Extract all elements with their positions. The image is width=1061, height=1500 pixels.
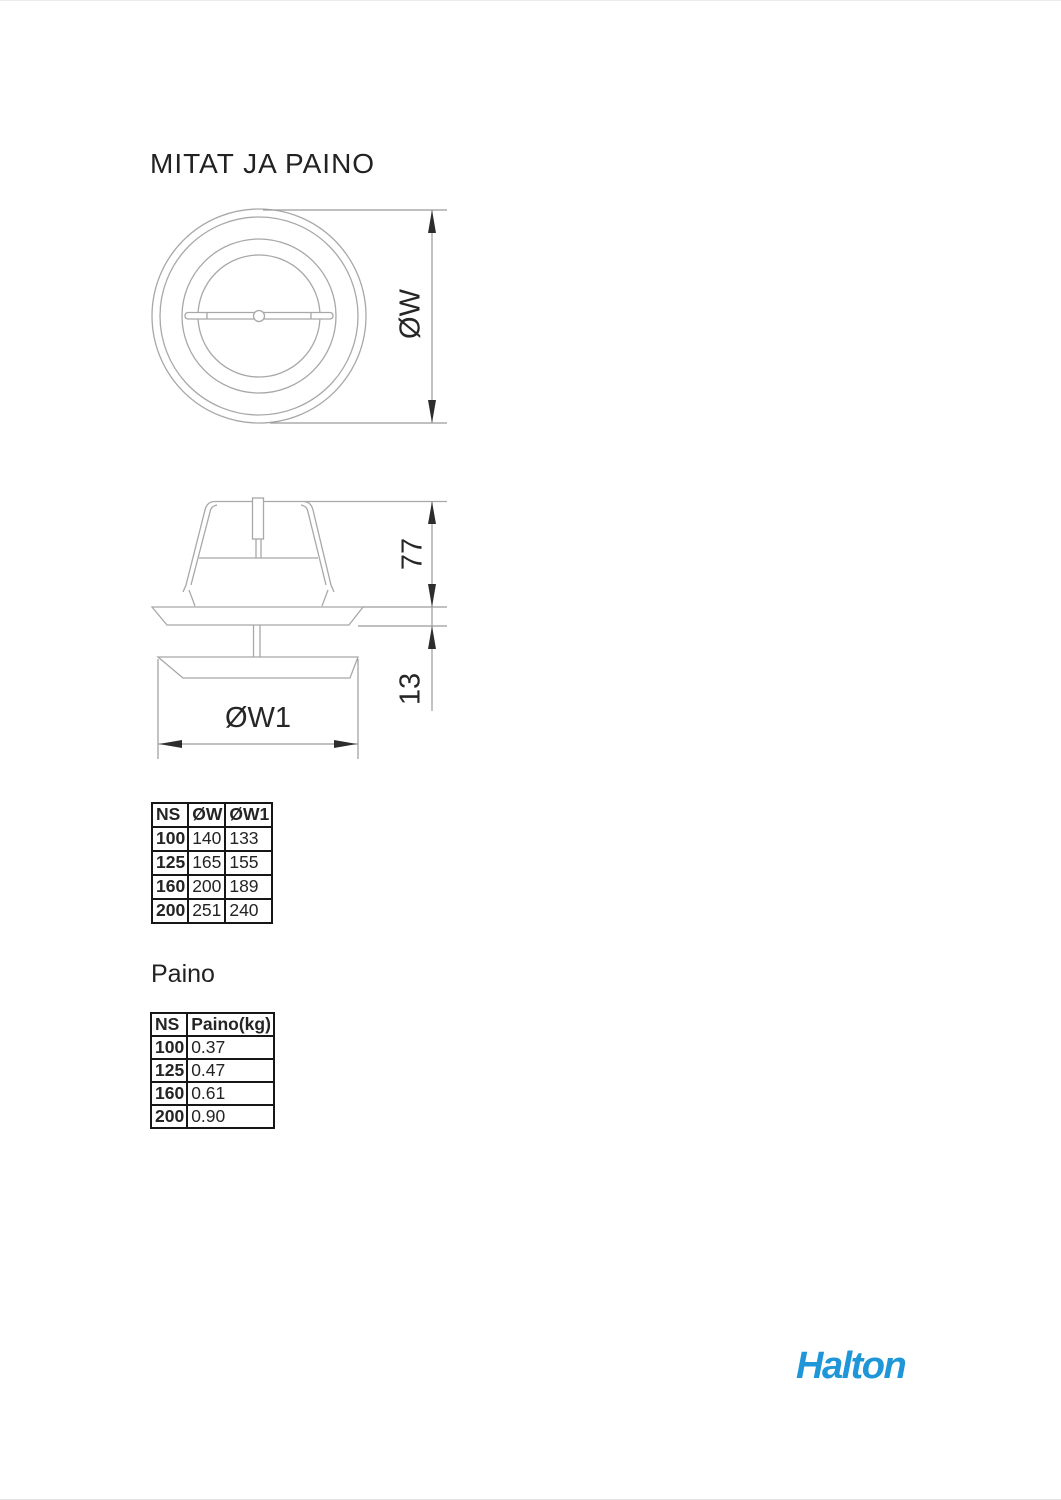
table-row: 1600.61 — [151, 1082, 274, 1105]
cone-skirt-right — [322, 590, 328, 606]
table-cell: 165 — [188, 851, 225, 875]
height-13-label: 13 — [395, 673, 427, 705]
halton-logo: Halton — [796, 1345, 905, 1388]
weight-table: NSPaino(kg)1000.371250.471600.612000.90 — [150, 1012, 275, 1129]
datasheet-page: { "page": { "title": "MITAT JA PAINO", "… — [0, 0, 1061, 1500]
center-hub — [254, 311, 265, 322]
dimensions-table: NSØWØW1100140133125165155160200189200251… — [151, 802, 273, 924]
table-cell: 100 — [151, 1036, 187, 1059]
table-cell: 140 — [188, 827, 225, 851]
diameter-w-label: ØW — [395, 288, 427, 339]
table-cell: 200 — [188, 875, 225, 899]
arrowhead-down-77 — [428, 584, 436, 607]
arrowhead-up — [428, 210, 436, 233]
column-header: NS — [151, 1013, 187, 1036]
header-row: NSØWØW1 — [152, 803, 272, 827]
arrowhead-up-77 — [428, 502, 436, 525]
diameter-w1-label: ØW1 — [225, 702, 291, 734]
side-view-drawing — [152, 498, 447, 678]
table-row: 200251240 — [152, 899, 272, 923]
column-header: ØW — [188, 803, 225, 827]
table-cell: 251 — [188, 899, 225, 923]
column-header: Paino(kg) — [187, 1013, 274, 1036]
table-cell: 125 — [152, 851, 188, 875]
spindle — [253, 498, 264, 539]
table-cell: 155 — [225, 851, 272, 875]
table-row: 1000.37 — [151, 1036, 274, 1059]
cone-skirt-left — [189, 590, 195, 606]
table-cell: 0.90 — [187, 1105, 274, 1128]
face-disc — [158, 657, 358, 678]
weight-heading: Paino — [151, 960, 215, 989]
table-row: 125165155 — [152, 851, 272, 875]
table-row: 1250.47 — [151, 1059, 274, 1082]
arrowhead-down — [428, 400, 436, 423]
table-row: 2000.90 — [151, 1105, 274, 1128]
arrowhead-up-13 — [428, 626, 436, 649]
column-header: NS — [152, 803, 188, 827]
table-row: 100140133 — [152, 827, 272, 851]
side-view-width-dimension: ØW1 — [158, 659, 358, 759]
table-cell: 200 — [151, 1105, 187, 1128]
arrowhead-right — [334, 740, 357, 748]
column-header: ØW1 — [225, 803, 272, 827]
table-cell: 0.61 — [187, 1082, 274, 1105]
table-cell: 0.37 — [187, 1036, 274, 1059]
table-cell: 0.47 — [187, 1059, 274, 1082]
table-row: 160200189 — [152, 875, 272, 899]
ceiling-flange — [152, 607, 363, 625]
header-row: NSPaino(kg) — [151, 1013, 274, 1036]
side-view-height-dimensions: 77 13 — [358, 502, 447, 712]
page-title: MITAT JA PAINO — [150, 148, 375, 180]
table-cell: 200 — [152, 899, 188, 923]
cone-side-left-inner — [191, 505, 217, 585]
technical-drawing: ØW 77 13 — [140, 191, 470, 776]
table-cell: 189 — [225, 875, 272, 899]
top-view-drawing — [152, 209, 366, 423]
table-cell: 240 — [225, 899, 272, 923]
table-cell: 160 — [152, 875, 188, 899]
arrowhead-left — [159, 740, 182, 748]
height-77-label: 77 — [397, 538, 429, 570]
table-cell: 100 — [152, 827, 188, 851]
table-cell: 133 — [225, 827, 272, 851]
cone-side-right-inner — [301, 505, 326, 585]
table-cell: 125 — [151, 1059, 187, 1082]
table-cell: 160 — [151, 1082, 187, 1105]
